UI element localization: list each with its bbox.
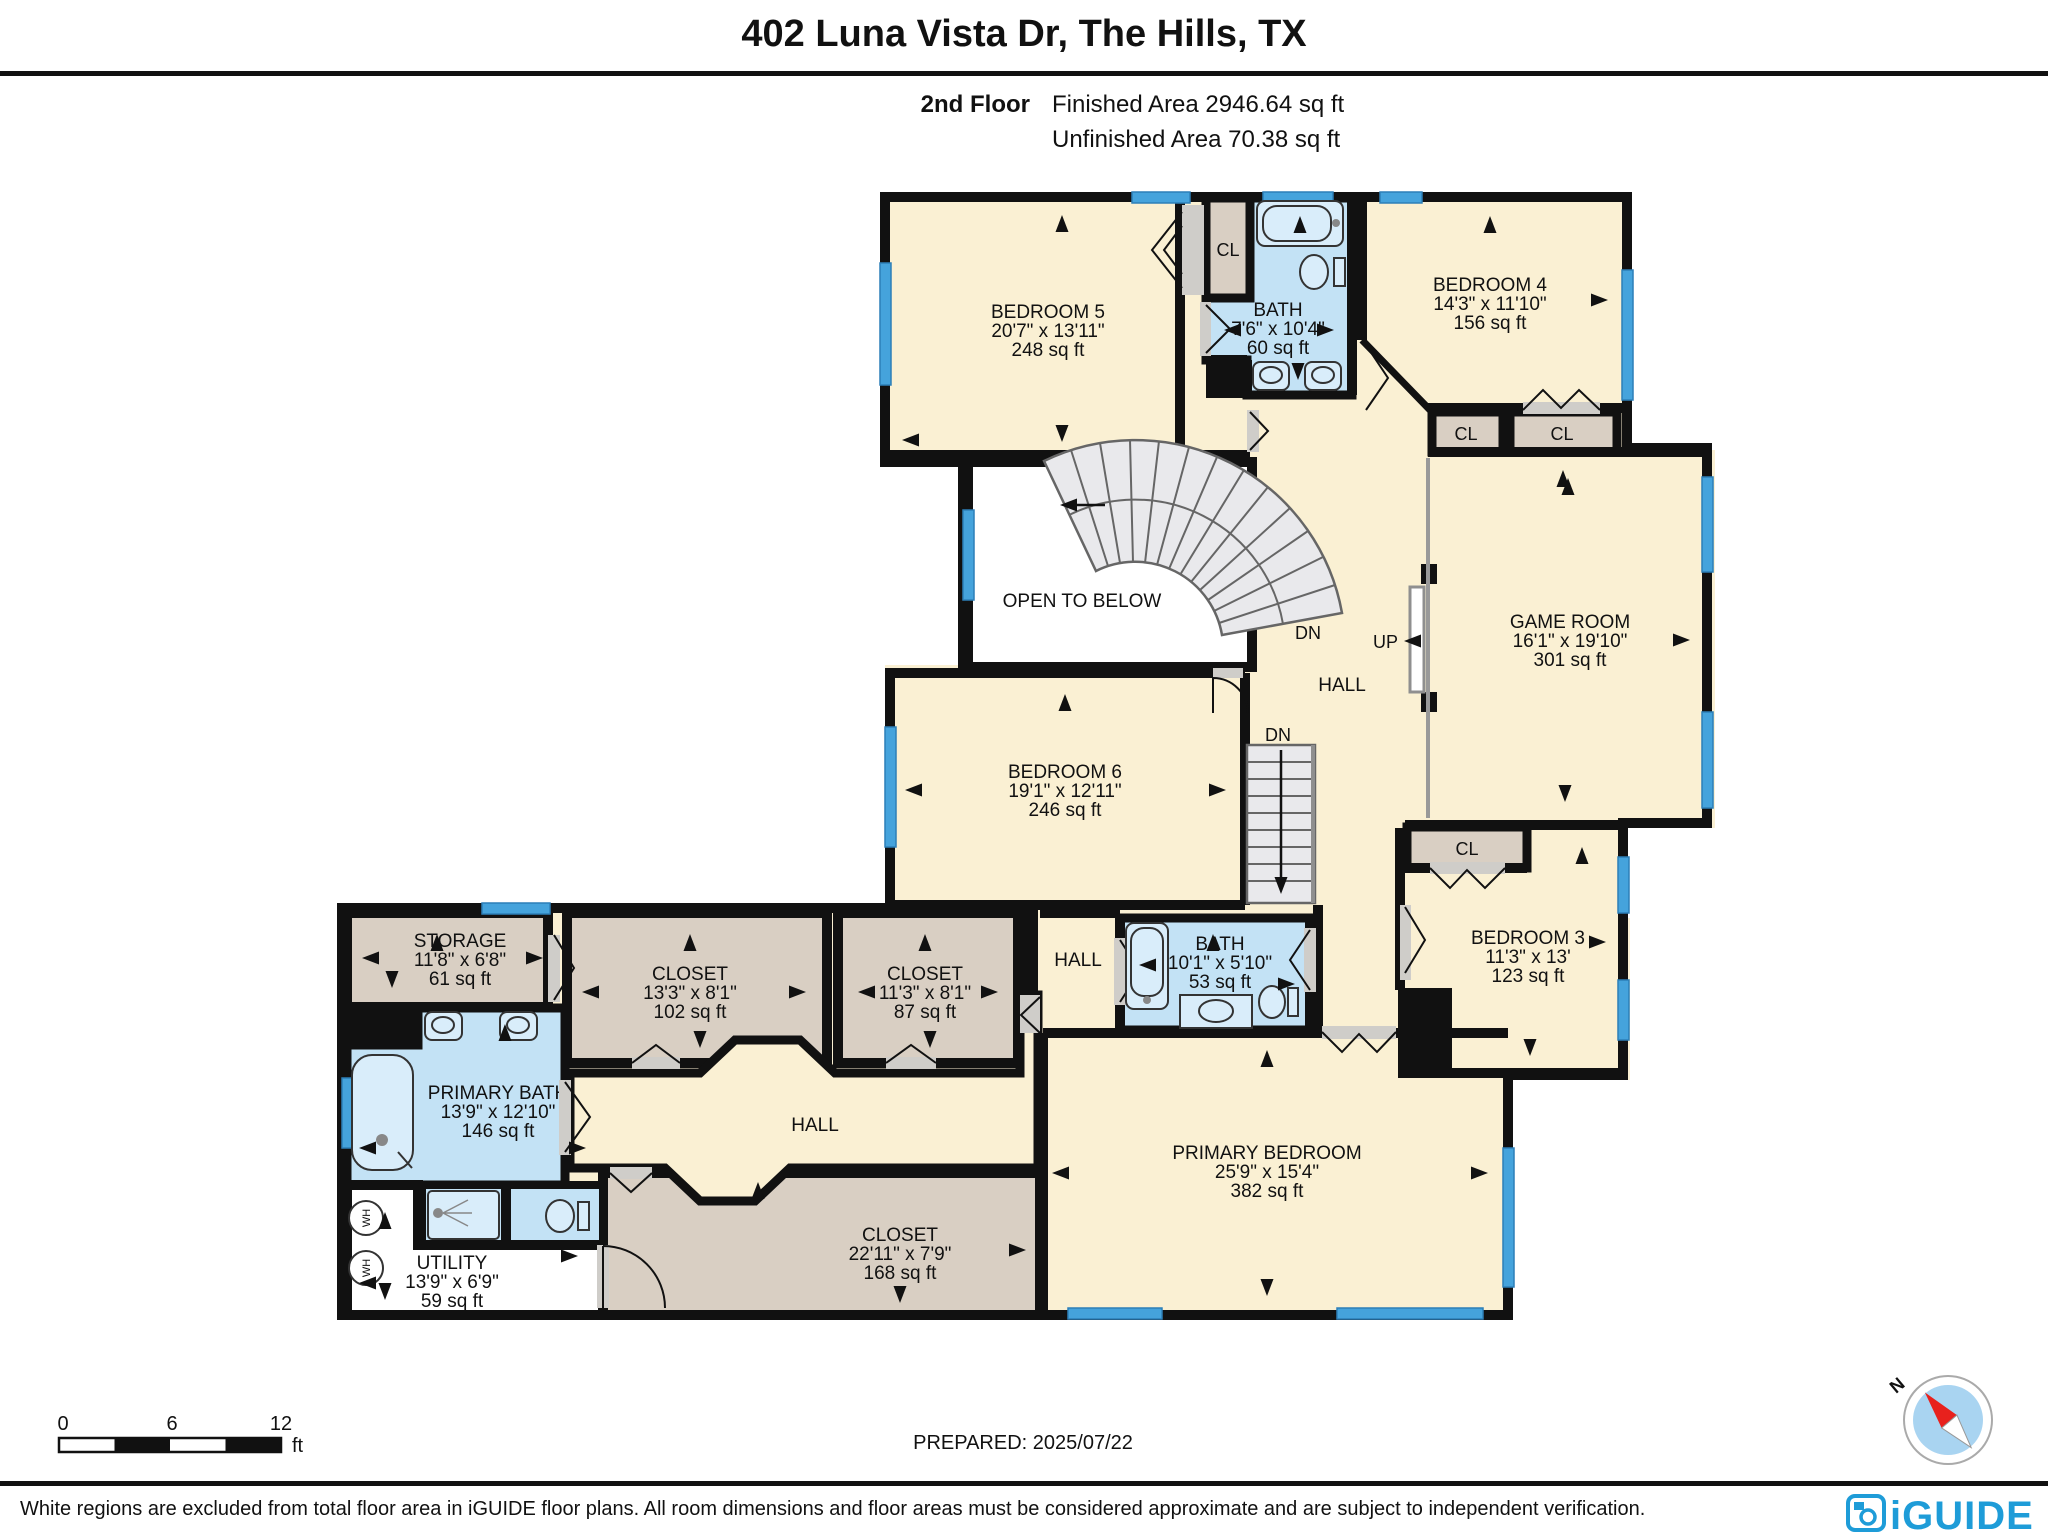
svg-text:13'9" x 6'9": 13'9" x 6'9": [405, 1272, 499, 1293]
svg-text:14'3" x 11'10": 14'3" x 11'10": [1433, 294, 1546, 315]
svg-text:25'9" x 15'4": 25'9" x 15'4": [1215, 1162, 1319, 1183]
svg-text:BEDROOM 5: BEDROOM 5: [991, 302, 1105, 323]
svg-text:PRIMARY BEDROOM: PRIMARY BEDROOM: [1172, 1143, 1361, 1164]
room-closet-primary: CLOSET 22'11" x 7'9" 168 sq ft: [603, 1173, 1040, 1315]
svg-text:CLOSET: CLOSET: [652, 964, 728, 985]
floor-plan-page: 402 Luna Vista Dr, The Hills, TX 2nd Flo…: [0, 0, 2048, 1533]
svg-text:CL: CL: [1455, 839, 1478, 859]
svg-text:53 sq ft: 53 sq ft: [1189, 972, 1252, 993]
toilet-icon: [1300, 255, 1345, 289]
page-title: 402 Luna Vista Dr, The Hills, TX: [741, 13, 1307, 55]
svg-text:248 sq ft: 248 sq ft: [1012, 340, 1086, 361]
disclaimer-text: White regions are excluded from total fl…: [20, 1498, 1645, 1520]
svg-text:156 sq ft: 156 sq ft: [1454, 313, 1528, 334]
hall-lower-label: HALL: [791, 1115, 839, 1136]
svg-text:BEDROOM 4: BEDROOM 4: [1433, 275, 1547, 296]
toilet2-icon: [1259, 986, 1298, 1018]
svg-text:87 sq ft: 87 sq ft: [894, 1002, 957, 1023]
svg-text:60 sq ft: 60 sq ft: [1247, 338, 1310, 359]
svg-text:13'9" x 12'10": 13'9" x 12'10": [441, 1102, 556, 1123]
compass-north-label: N: [1886, 1374, 1909, 1398]
wh-label-1: WH: [361, 1209, 373, 1227]
svg-text:16'1" x 19'10": 16'1" x 19'10": [1513, 631, 1628, 652]
svg-text:22'11" x 7'9": 22'11" x 7'9": [849, 1244, 952, 1265]
svg-text:BEDROOM 6: BEDROOM 6: [1008, 762, 1122, 783]
svg-text:7'6" x 10'4": 7'6" x 10'4": [1231, 319, 1325, 340]
header: 402 Luna Vista Dr, The Hills, TX 2nd Flo…: [0, 13, 2048, 153]
svg-text:CL: CL: [1550, 424, 1573, 444]
svg-text:6: 6: [166, 1413, 177, 1435]
svg-text:0: 0: [57, 1413, 68, 1435]
room-cl-bed4-a: CL: [1432, 412, 1503, 452]
svg-text:10'1" x 5'10": 10'1" x 5'10": [1168, 953, 1272, 974]
svg-text:102 sq ft: 102 sq ft: [654, 1002, 728, 1023]
svg-text:GAME ROOM: GAME ROOM: [1510, 612, 1630, 633]
room-hall-small: HALL: [1054, 950, 1102, 971]
hall-small-label: HALL: [1054, 950, 1102, 971]
svg-text:301 sq ft: 301 sq ft: [1534, 650, 1608, 671]
svg-text:CLOSET: CLOSET: [862, 1225, 938, 1246]
primary-tub-icon: [352, 1055, 413, 1170]
svg-text:BATH: BATH: [1253, 300, 1302, 321]
svg-text:12: 12: [270, 1413, 292, 1435]
wh-label-2: WH: [361, 1259, 373, 1277]
svg-text:11'3" x 8'1": 11'3" x 8'1": [879, 983, 971, 1004]
scale-bar: 0 6 12 ft: [57, 1413, 303, 1457]
svg-text:STORAGE: STORAGE: [414, 931, 507, 952]
svg-text:13'3" x 8'1": 13'3" x 8'1": [643, 983, 737, 1004]
room-hall-center: HALL: [1318, 675, 1366, 696]
svg-text:CLOSET: CLOSET: [887, 964, 963, 985]
svg-text:382 sq ft: 382 sq ft: [1231, 1181, 1305, 1202]
svg-text:UTILITY: UTILITY: [417, 1253, 488, 1274]
svg-text:PRIMARY BATH: PRIMARY BATH: [428, 1083, 568, 1104]
vanity-sink-icon: [1180, 995, 1252, 1028]
footer-divider: [0, 1481, 2048, 1486]
hall-center-label: HALL: [1318, 675, 1366, 696]
header-divider: [0, 71, 2048, 76]
up-label: UP: [1373, 632, 1398, 652]
svg-text:61 sq ft: 61 sq ft: [429, 969, 492, 990]
svg-text:ft: ft: [292, 1435, 304, 1457]
svg-text:123 sq ft: 123 sq ft: [1492, 966, 1566, 987]
floor-label: 2nd Floor: [921, 91, 1030, 118]
iguide-logo: iGUIDE: [1848, 1494, 2034, 1533]
prepared-date: PREPARED: 2025/07/22: [913, 1432, 1133, 1454]
toilet3-icon: [546, 1200, 589, 1232]
unfinished-area-label: Unfinished Area 70.38 sq ft: [1052, 126, 1341, 153]
stairs-straight: DN: [1247, 725, 1315, 903]
svg-text:CL: CL: [1216, 240, 1239, 260]
svg-text:BATH: BATH: [1195, 934, 1244, 955]
room-cl-bed4-b: CL: [1510, 412, 1617, 452]
svg-text:168 sq ft: 168 sq ft: [864, 1263, 938, 1284]
room-cl-bed3: CL: [1407, 827, 1527, 868]
brand-name: iGUIDE: [1890, 1494, 2034, 1533]
finished-area-label: Finished Area 2946.64 sq ft: [1052, 91, 1345, 118]
dn-straight-label: DN: [1265, 725, 1291, 745]
room-cl-top: CL: [1206, 198, 1250, 298]
svg-text:19'1" x 12'11": 19'1" x 12'11": [1008, 781, 1121, 802]
svg-text:246 sq ft: 246 sq ft: [1029, 800, 1103, 821]
shower-icon: [428, 1191, 499, 1239]
svg-text:11'8" x 6'8": 11'8" x 6'8": [414, 950, 506, 971]
svg-text:CL: CL: [1454, 424, 1477, 444]
floor-plan-svg: 402 Luna Vista Dr, The Hills, TX 2nd Flo…: [0, 0, 2048, 1533]
svg-text:146 sq ft: 146 sq ft: [462, 1121, 536, 1142]
dn-curved-label: DN: [1295, 623, 1321, 643]
svg-text:BEDROOM 3: BEDROOM 3: [1471, 928, 1585, 949]
open-to-below-label: OPEN TO BELOW: [1003, 591, 1162, 612]
svg-text:11'3" x 13': 11'3" x 13': [1485, 947, 1570, 968]
svg-text:59 sq ft: 59 sq ft: [421, 1291, 484, 1312]
compass-icon: N: [1886, 1374, 1992, 1464]
svg-text:20'7" x 13'11": 20'7" x 13'11": [991, 321, 1104, 342]
